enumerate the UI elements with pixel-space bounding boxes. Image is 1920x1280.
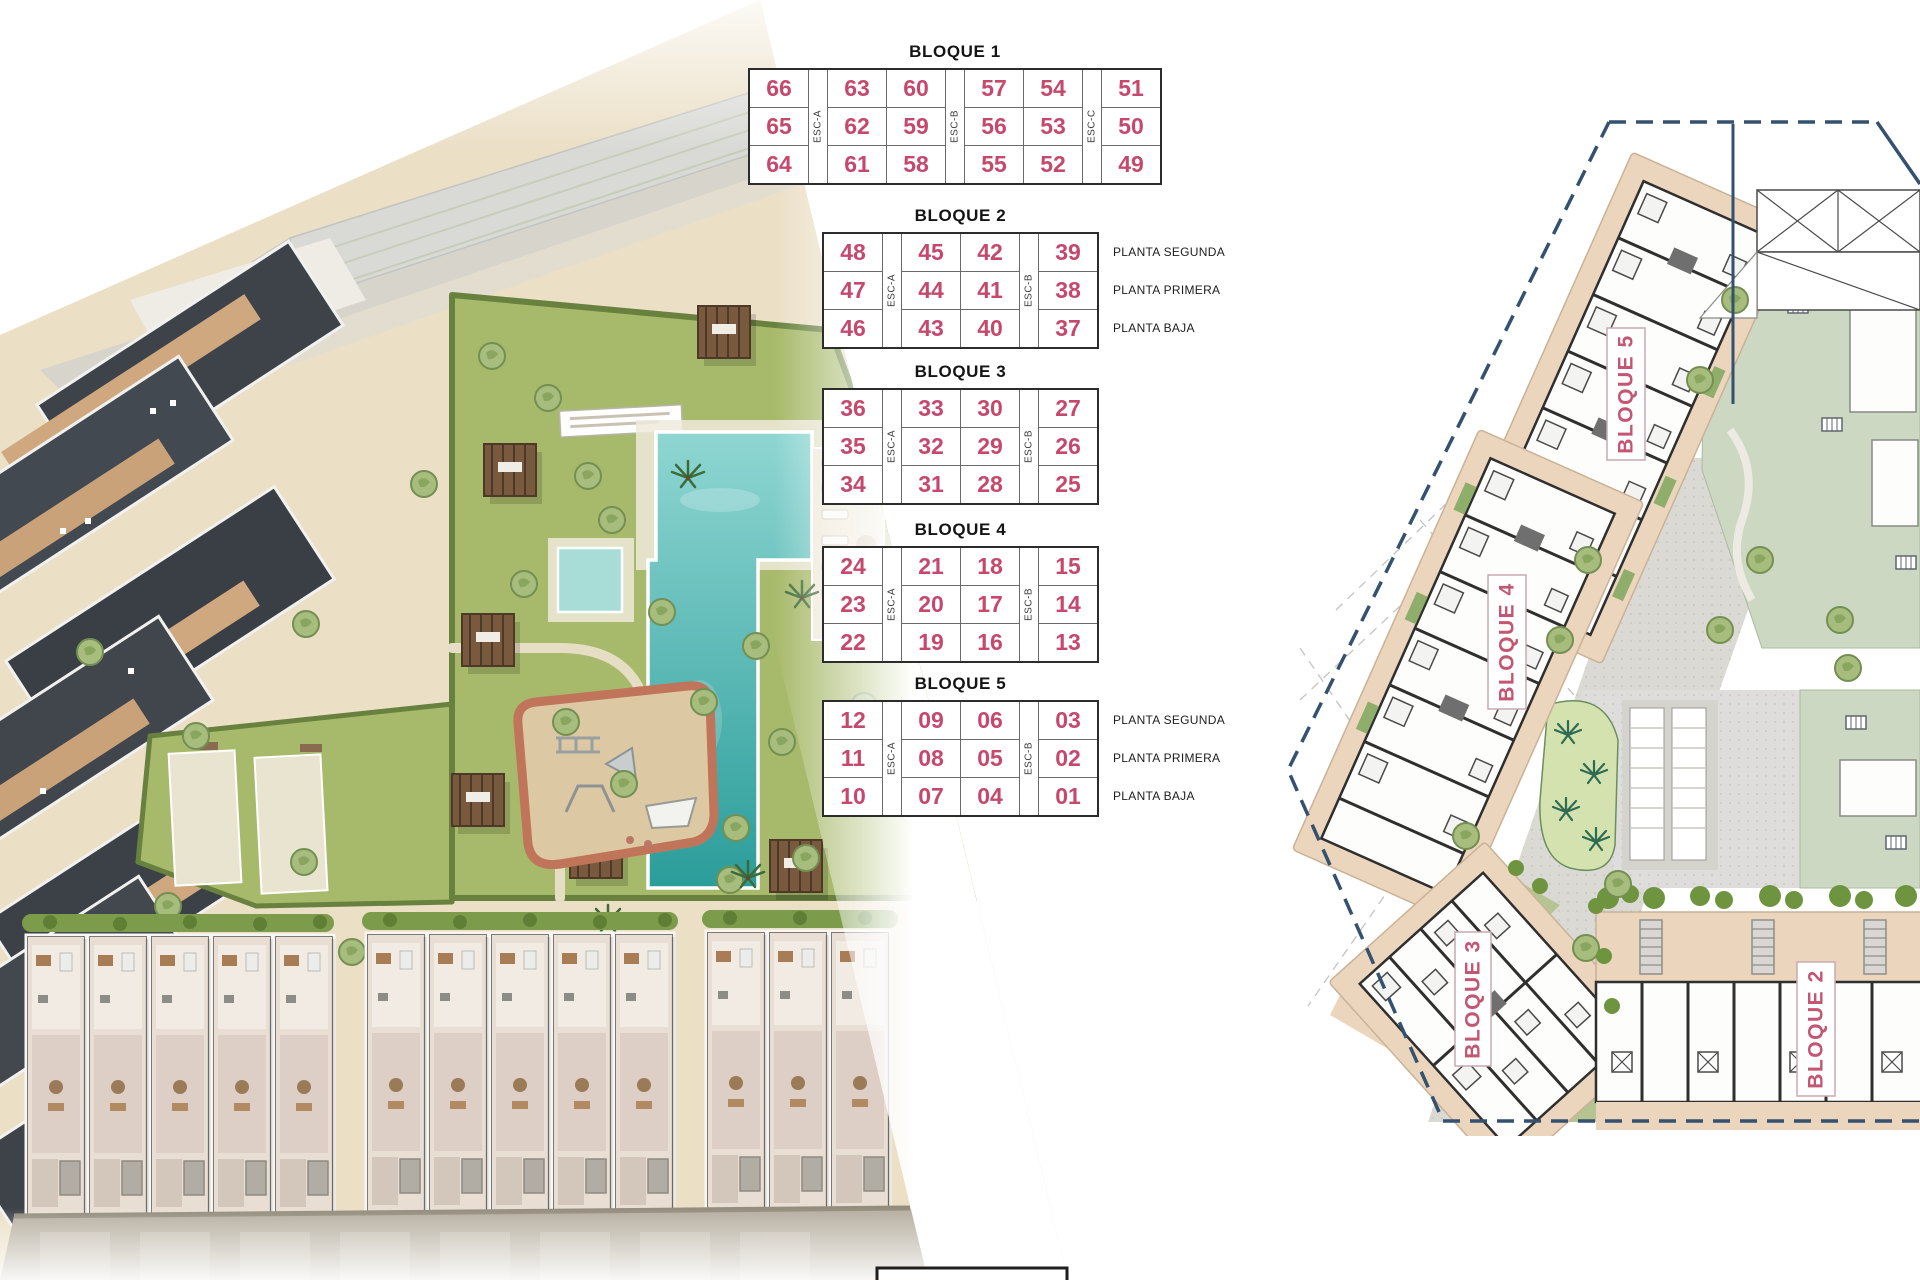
masterplan: BLOQUE 5 BLOQUE 4 BLOQUE 3 BLOQUE 2 (1240, 122, 1920, 1280)
planta-label: PLANTA BAJA (1113, 789, 1195, 803)
unit-cell: 22 (824, 624, 882, 661)
unit-cell: 60 (887, 70, 945, 107)
planta-label: PLANTA PRIMERA (1113, 751, 1220, 765)
unit-cell: 51 (1102, 70, 1160, 107)
esc-label: ESC-A (883, 702, 901, 815)
block-title: BLOQUE 2 (822, 206, 1099, 226)
planta-label: PLANTA PRIMERA (1113, 283, 1220, 297)
esc-label: ESC-B (1020, 702, 1038, 815)
unit-cell: 59 (887, 108, 945, 145)
unit-cell: 08 (902, 740, 960, 777)
unit-cell: 47 (824, 272, 882, 309)
unit-cell: 30 (961, 390, 1019, 427)
block-table-5: BLOQUE 5 12 11 10 ESC-A 09 08 07 06 05 0… (822, 700, 1099, 817)
bloque-3-label: BLOQUE 3 (1462, 939, 1485, 1058)
unit-cell: 10 (824, 778, 882, 815)
unit-cell: 09 (902, 702, 960, 739)
block-title: BLOQUE 5 (822, 674, 1099, 694)
unit-cell: 58 (887, 146, 945, 183)
unit-cell: 05 (961, 740, 1019, 777)
unit-cell: 45 (902, 234, 960, 271)
unit-cell: 23 (824, 586, 882, 623)
block-table-2: BLOQUE 2 48 47 46 ESC-A 45 44 43 42 41 4… (822, 232, 1099, 349)
unit-cell: 11 (824, 740, 882, 777)
unit-cell: 63 (828, 70, 886, 107)
block-title: BLOQUE 4 (822, 520, 1099, 540)
unit-cell: 18 (961, 548, 1019, 585)
unit-cell: 19 (902, 624, 960, 661)
petanque-court (254, 754, 327, 893)
esc-label: ESC-A (883, 390, 901, 503)
planta-label: PLANTA SEGUNDA (1113, 245, 1225, 259)
esc-label: ESC-A (883, 234, 901, 347)
unit-cell: 29 (961, 428, 1019, 465)
unit-cell: 20 (902, 586, 960, 623)
unit-cell: 24 (824, 548, 882, 585)
unit-cell: 62 (828, 108, 886, 145)
esc-label: ESC-B (1020, 234, 1038, 347)
pergola (452, 774, 510, 834)
unit-cell: 15 (1039, 548, 1097, 585)
unit-cell: 48 (824, 234, 882, 271)
unit-cell: 26 (1039, 428, 1097, 465)
unit-cell: 33 (902, 390, 960, 427)
esc-label: ESC-A (883, 548, 901, 661)
unit-cell: 56 (965, 108, 1023, 145)
unit-cell: 50 (1102, 108, 1160, 145)
unit-cell: 25 (1039, 466, 1097, 503)
bloque-2-label: BLOQUE 2 (1805, 969, 1828, 1088)
bloque-5-label: BLOQUE 5 (1615, 334, 1638, 453)
unit-cell: 66 (750, 70, 808, 107)
block-title: BLOQUE 1 (748, 42, 1162, 62)
brochure-page: BLOQUE 5 BLOQUE 4 BLOQUE 3 BLOQUE 2 BLOQ… (0, 0, 1920, 1280)
unit-cell: 01 (1039, 778, 1097, 815)
unit-cell: 34 (824, 466, 882, 503)
unit-cell: 07 (902, 778, 960, 815)
kids-pool (558, 548, 622, 612)
unit-cell: 40 (961, 310, 1019, 347)
unit-cell: 37 (1039, 310, 1097, 347)
esc-label: ESC-A (809, 70, 827, 183)
unit-cell: 28 (961, 466, 1019, 503)
pergola (462, 614, 520, 674)
unit-cell: 06 (961, 702, 1019, 739)
unit-cell: 64 (750, 146, 808, 183)
esc-label: ESC-B (1020, 390, 1038, 503)
unit-cell: 21 (902, 548, 960, 585)
townhouse-row (22, 910, 898, 1217)
planta-label: PLANTA BAJA (1113, 321, 1195, 335)
unit-cell: 38 (1039, 272, 1097, 309)
esc-label: ESC-B (946, 70, 964, 183)
unit-cell: 41 (961, 272, 1019, 309)
legend-box-partial (877, 1268, 1067, 1280)
petanque-court (169, 750, 242, 885)
unit-cell: 43 (902, 310, 960, 347)
unit-cell: 46 (824, 310, 882, 347)
unit-cell: 65 (750, 108, 808, 145)
bloque-4-label: BLOQUE 4 (1496, 582, 1519, 701)
unit-cell: 54 (1024, 70, 1082, 107)
bloque-2-building (1596, 885, 1920, 1130)
pergola (484, 444, 542, 504)
unit-cell: 55 (965, 146, 1023, 183)
unit-cell: 61 (828, 146, 886, 183)
block-table-4: BLOQUE 4 24 23 22 ESC-A 21 20 19 18 17 1… (822, 546, 1099, 663)
esc-label: ESC-C (1083, 70, 1101, 183)
unit-cell: 52 (1024, 146, 1082, 183)
block-table-3: BLOQUE 3 36 35 34 ESC-A 33 32 31 30 29 2… (822, 388, 1099, 505)
unit-cell: 02 (1039, 740, 1097, 777)
unit-cell: 53 (1024, 108, 1082, 145)
block-table-1: BLOQUE 1 66 65 64 ESC-A 63 62 61 60 59 5… (748, 68, 1162, 185)
unit-cell: 03 (1039, 702, 1097, 739)
unit-cell: 14 (1039, 586, 1097, 623)
unit-cell: 13 (1039, 624, 1097, 661)
unit-cell: 12 (824, 702, 882, 739)
unit-cell: 42 (961, 234, 1019, 271)
unit-cell: 17 (961, 586, 1019, 623)
unit-cell: 36 (824, 390, 882, 427)
block-title: BLOQUE 3 (822, 362, 1099, 382)
palm-garden (1540, 701, 1618, 871)
unit-cell: 27 (1039, 390, 1097, 427)
parking-area (1622, 700, 1718, 870)
unit-cell: 44 (902, 272, 960, 309)
unit-cell: 49 (1102, 146, 1160, 183)
unit-cell: 57 (965, 70, 1023, 107)
unit-cell: 16 (961, 624, 1019, 661)
planta-label: PLANTA SEGUNDA (1113, 713, 1225, 727)
unit-cell: 31 (902, 466, 960, 503)
unit-cell: 04 (961, 778, 1019, 815)
unit-cell: 39 (1039, 234, 1097, 271)
esc-label: ESC-B (1020, 548, 1038, 661)
unit-cell: 32 (902, 428, 960, 465)
unit-cell: 35 (824, 428, 882, 465)
